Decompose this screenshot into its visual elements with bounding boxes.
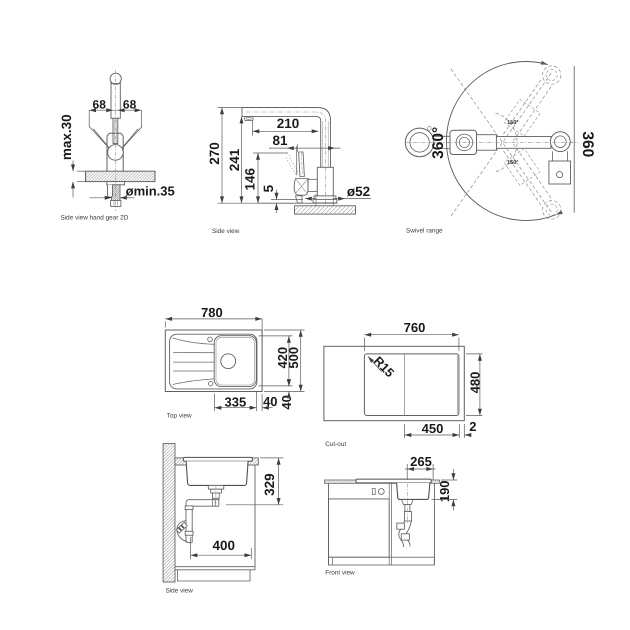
svg-text:ø52: ø52 — [347, 184, 370, 199]
svg-text:146: 146 — [243, 167, 258, 190]
svg-text:max.30: max.30 — [59, 114, 74, 160]
svg-text:Cut-out: Cut-out — [325, 441, 346, 448]
svg-text:40: 40 — [279, 395, 294, 409]
svg-text:360: 360 — [579, 131, 596, 157]
svg-text:270: 270 — [207, 142, 222, 165]
svg-text:190: 190 — [437, 480, 452, 502]
svg-text:150°: 150° — [507, 160, 518, 166]
svg-text:Front view: Front view — [325, 570, 355, 577]
svg-text:265: 265 — [410, 454, 432, 469]
svg-text:150°: 150° — [507, 120, 518, 126]
svg-text:68: 68 — [123, 98, 137, 112]
svg-text:210: 210 — [277, 116, 300, 131]
svg-text:ømin.35: ømin.35 — [126, 183, 175, 198]
svg-text:500: 500 — [286, 347, 301, 369]
svg-text:R15: R15 — [371, 354, 397, 380]
svg-text:400: 400 — [213, 538, 236, 553]
svg-text:81: 81 — [272, 133, 288, 148]
svg-text:2: 2 — [469, 419, 476, 434]
svg-text:360°: 360° — [430, 127, 447, 159]
svg-text:Top view: Top view — [167, 413, 192, 420]
svg-text:Swivel range: Swivel range — [406, 227, 443, 234]
svg-text:780: 780 — [201, 305, 223, 320]
svg-text:450: 450 — [422, 421, 444, 436]
svg-text:329: 329 — [262, 473, 277, 496]
svg-text:241: 241 — [227, 148, 242, 171]
svg-text:760: 760 — [404, 320, 426, 335]
svg-text:Side view: Side view — [166, 588, 194, 595]
svg-text:335: 335 — [225, 394, 247, 409]
svg-text:Side view hand gear 2D: Side view hand gear 2D — [61, 214, 129, 221]
svg-text:Side view: Side view — [212, 228, 240, 235]
svg-text:5: 5 — [261, 184, 276, 192]
